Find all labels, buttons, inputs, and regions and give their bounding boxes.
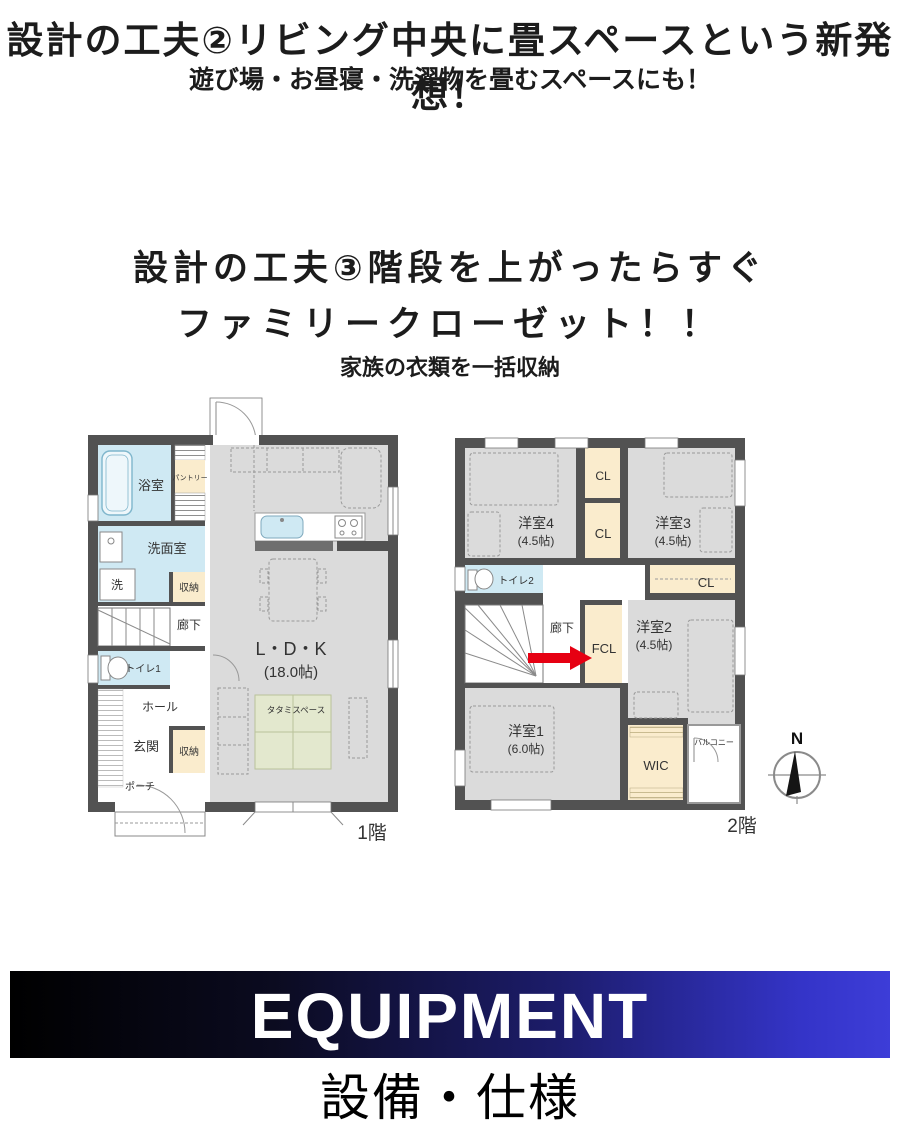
shoe-cabinet-hatch [98,689,123,787]
inner-wall [98,646,205,651]
inner-wall [465,558,735,565]
floor-plan-1f: 浴室 パントリー 洗面室 洗 収納 廊下 トイレ1 ホール 玄関 収納 ポーチ … [85,393,405,848]
window [455,750,465,786]
equipment-banner-subtitle: 設備・仕様 [0,1058,900,1125]
faucet-icon [280,518,284,522]
inner-wall [169,572,173,602]
room2-size-label: (4.5帖) [636,637,673,652]
main-subtitle: 遊び場・お昼寝・洗濯物を畳むスペースにも！ [0,60,900,96]
wic-shelf-hatch [630,788,683,798]
compass-needle [786,751,801,796]
window [88,655,98,683]
tatami-label: タタミスペース [267,705,325,715]
room1-label: 洋室1 [508,723,544,739]
toilet2-label: トイレ2 [498,576,534,587]
corridor-label-2f: 廊下 [550,620,574,635]
window [485,438,518,448]
stove-icon [335,516,362,538]
entrance-label: 玄関 [133,739,159,754]
wic-shelf-hatch [630,727,683,737]
closet-mid-label: CL [595,526,612,541]
closet-top-label: CL [595,469,611,483]
counter-base [255,541,333,551]
inner-wall [620,448,628,558]
closet-right-label: CL [698,575,715,590]
inner-wall [169,730,173,773]
room4-size-label: (4.5帖) [518,533,555,548]
bathtub-icon [102,451,132,515]
feature3-subtitle: 家族の衣類を一括収納 [0,350,900,382]
floor2-label: 2階 [727,815,757,837]
inner-wall [645,593,735,600]
inner-wall [169,726,205,730]
compass-north-label: N [791,729,803,748]
laundry-label: 洗 [111,578,123,592]
inner-wall [576,448,585,558]
equipment-banner-title: EQUIPMENT [10,971,890,1058]
shelf-hatch [175,493,205,521]
pantry-label: パントリー [172,474,207,482]
ldk-label: L・D・K [255,639,326,659]
corridor-label-1f: 廊下 [177,617,201,632]
room3-size-label: (4.5帖) [655,533,692,548]
inner-wall [585,498,620,503]
room1-size-label: (6.0帖) [508,741,545,756]
inner-wall [620,683,628,800]
inner-wall [98,521,205,526]
entrance-wall-opening [115,802,205,812]
room4-label: 洋室4 [518,515,554,531]
compass-icon: N [760,715,835,810]
balcony-label: バルコニー [694,738,734,747]
inner-wall [171,445,175,521]
floor-plan-2f: 洋室4 (4.5帖) 洋室3 (4.5帖) CL CL CL トイレ2 廊下 F… [448,420,768,860]
inner-wall [337,541,388,551]
window [645,438,678,448]
porch-label: ポーチ [125,781,155,793]
inner-wall [465,593,543,605]
entrance-opening [213,435,259,445]
room3-label: 洋室3 [655,515,691,531]
equipment-banner: EQUIPMENT [10,971,890,1058]
red-arrow-shaft [528,653,570,663]
feature3-title-line2: ファミリークローゼット！！ [0,296,900,347]
storage-lower-label: 収納 [179,745,199,758]
toilet-bowl-icon [475,569,493,589]
porch-step [115,812,205,836]
vanity-sink-icon [100,532,122,562]
window [491,800,551,810]
floor1-label: 1階 [357,822,387,844]
wic-label: WIC [643,758,668,773]
room2-label: 洋室2 [636,619,672,635]
bath-label: 浴室 [138,478,164,493]
inner-wall [98,685,170,689]
inner-wall [98,602,205,606]
inner-wall [580,600,585,683]
toilet1-label: トイレ1 [125,664,161,675]
window [735,460,745,506]
window [455,567,465,591]
fcl-label: FCL [592,641,617,656]
window-swing-ticks [243,812,343,825]
inner-wall [465,683,622,688]
flyer-page: 設計の工夫②リビング中央に畳スペースという新発想！ 遊び場・お昼寝・洗濯物を畳む… [0,0,900,1125]
inner-wall [645,565,650,593]
inner-wall [585,600,622,605]
shelf-hatch [175,445,205,460]
balcony [688,725,740,803]
window [555,438,588,448]
hall-label: ホール [142,700,178,714]
inner-wall [628,718,685,725]
washroom-label: 洗面室 [147,541,186,556]
storage-upper-label: 収納 [179,581,199,594]
window [735,627,745,675]
window [88,495,98,521]
ldk-size-label: (18.0帖) [264,664,318,681]
feature3-title-line1: 設計の工夫③階段を上がったらすぐ [0,240,900,291]
